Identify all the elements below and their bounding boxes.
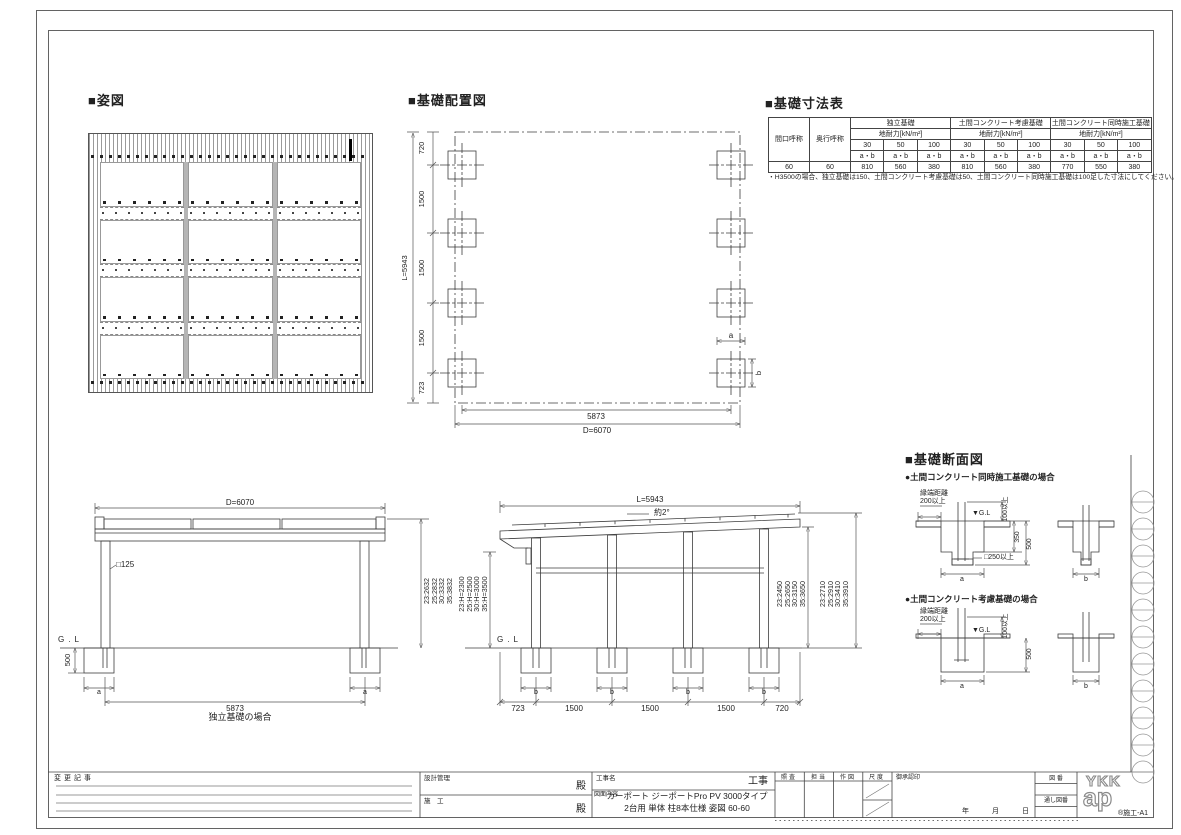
dim-label: 1500 (717, 704, 735, 713)
dim-label: 100以上 (1002, 497, 1010, 522)
date-day-label: 日 (1022, 807, 1029, 816)
plan-view (88, 133, 373, 393)
ykk-logo-bottom: ap (1083, 784, 1112, 813)
table-cell: 380 (1017, 162, 1050, 173)
table-cell: 560 (884, 162, 917, 173)
dim-label: a (97, 689, 101, 697)
plan-column (100, 162, 184, 379)
side-elevation-lines (465, 501, 862, 648)
design-admin-label: 設計管理 (424, 774, 450, 783)
table-cell: 100 (1118, 140, 1151, 151)
dim-label: 35:3910 (842, 581, 850, 607)
construction-label: 施 工 (424, 797, 444, 806)
col-header: 尺度 (869, 774, 885, 783)
project-name-label: 工事名 (596, 774, 616, 783)
plan-column (277, 162, 361, 379)
edge-distance-label: 縁端距離 (920, 490, 948, 498)
roof-panel (277, 277, 361, 322)
roof-panel (277, 335, 361, 380)
table-cell: 100 (917, 140, 950, 151)
table-note: ・H3500の場合、独立基礎は150、土間コンクリート考慮基礎は50、土間コンク… (768, 173, 1178, 182)
table-cell: a・b (884, 151, 917, 162)
dim-label: 35:H=3500 (481, 576, 489, 611)
table-cell: a・b (984, 151, 1017, 162)
table-cell: a・b (1118, 151, 1151, 162)
table-cell: a・b (951, 151, 984, 162)
table-cell: 30 (851, 140, 884, 151)
dono-label: 殿 (576, 805, 586, 814)
front-elevation-lines (60, 503, 429, 706)
table-cell: 60 (769, 162, 810, 173)
table-cell: a・b (851, 151, 884, 162)
table-cell: 560 (984, 162, 1017, 173)
table-cell: 50 (984, 140, 1017, 151)
change-notes-label: 変更記事 (54, 774, 94, 783)
purlin-band (188, 207, 272, 220)
table-cell: 奥行呼称 (810, 118, 851, 162)
table-cell: 間口呼称 (769, 118, 810, 162)
dim-label: 723 (511, 704, 524, 713)
table-cell: a・b (917, 151, 950, 162)
dim-label: 35:3650 (799, 581, 807, 607)
table-cell: 550 (1084, 162, 1117, 173)
table-cell: a・b (1084, 151, 1117, 162)
date-month-label: 月 (992, 807, 999, 816)
plan-dot-strip (91, 381, 370, 384)
table-cell: 100 (1017, 140, 1050, 151)
foundation-layout-lines (407, 132, 756, 428)
table-cell: 土間コンクリート考慮基礎 (951, 118, 1051, 129)
table-cell: 50 (1084, 140, 1117, 151)
col-header: 照査 (781, 774, 797, 783)
table-cell: a・b (1051, 151, 1084, 162)
dim-label: 1500 (418, 260, 426, 277)
ground-line-label: ▼G.L (972, 627, 990, 635)
table-cell: 独立基礎 (851, 118, 951, 129)
purlin-band (100, 264, 184, 277)
front-caption: 独立基礎の場合 (208, 713, 271, 722)
plan-panel-grid (100, 162, 361, 379)
binder-rings (1132, 491, 1154, 783)
dim-label: b (686, 689, 690, 697)
plan-dot-strip (91, 155, 370, 158)
dim-label: 1500 (565, 704, 583, 713)
roof-panel (188, 162, 272, 207)
section-case1-label: ●土間コンクリート同時施工基礎の場合 (905, 473, 1055, 482)
dim-label: 1500 (418, 191, 426, 208)
roof-panel (277, 162, 361, 207)
side-elevation-columns (497, 529, 803, 706)
table-cell: 810 (851, 162, 884, 173)
sheet-code: ®施工-A1 (1118, 809, 1148, 818)
roof-panel (100, 162, 184, 207)
dim-label: b (755, 371, 763, 375)
height-labels: 23:263225:283230:333235:3832 (423, 578, 453, 604)
dim-label: 1500 (641, 704, 659, 713)
roof-panel (100, 277, 184, 322)
dim-label: 500 (64, 654, 72, 667)
ground-line-label: G.L (58, 635, 83, 644)
purlin-band (277, 207, 361, 220)
height-labels: 23:245025:265030:315035:3650 (776, 581, 806, 607)
table-cell: 30 (951, 140, 984, 151)
table-cell: 地耐力[kN/m²] (1051, 129, 1151, 140)
purlin-band (277, 322, 361, 335)
col-header: 作図 (840, 774, 856, 783)
dim-label: 500 (1026, 538, 1034, 549)
drawing-content-line2: 2台用 単体 柱8本仕様 姿図 60-60 (624, 804, 750, 813)
table-cell: a・b (1017, 151, 1050, 162)
roof-panel (100, 220, 184, 265)
post-size-label: □125 (116, 560, 134, 569)
drawing-number-label: 図 番 (1049, 775, 1063, 784)
edge-distance-label: 縁端距離 (920, 608, 948, 616)
dim-label: a (363, 689, 367, 697)
layout-title: ■基礎配置図 (408, 96, 487, 105)
dim-label: b (1084, 683, 1088, 691)
roof-panel (277, 220, 361, 265)
table-cell: 380 (1118, 162, 1151, 173)
section-case2-label: ●土間コンクリート考慮基礎の場合 (905, 595, 1038, 604)
purlin-band (277, 264, 361, 277)
table-cell: 30 (1051, 140, 1084, 151)
foundation-dimension-table: 間口呼称奥行呼称独立基礎土間コンクリート考慮基礎土間コンクリート同時施工基礎地耐… (768, 117, 1152, 173)
dim-label: a (729, 331, 733, 340)
dim-label: L=5943 (637, 495, 664, 504)
dim-label: 1500 (418, 330, 426, 347)
section-title: ■基礎断面図 (905, 455, 984, 464)
table-cell: 770 (1051, 162, 1084, 173)
pocket-size-label: □250以上 (984, 554, 1014, 562)
ground-line-label: G.L (497, 635, 522, 644)
table-cell: 810 (951, 162, 984, 173)
serial-number-label: 通し図番 (1044, 797, 1068, 806)
roof-panel (188, 277, 272, 322)
dim-label: 100以上 (1002, 614, 1010, 639)
plan-title: ■姿図 (88, 96, 125, 105)
dim-label: D=6070 (226, 498, 254, 507)
approval-label: 御承認印 (896, 774, 920, 783)
table-cell: 380 (917, 162, 950, 173)
purlin-band (188, 322, 272, 335)
height-labels: 23:271025:291030:341035:3910 (819, 581, 849, 607)
dono-label: 殿 (576, 782, 586, 791)
edge-distance-value: 200以上 (920, 616, 946, 624)
purlin-band (100, 322, 184, 335)
dim-label: 723 (418, 382, 426, 395)
dim-label: D=6070 (583, 426, 611, 435)
eave-height-labels: 23:H=230025:H=250030:H=300035:H=3500 (458, 576, 488, 611)
purlin-band (100, 207, 184, 220)
table-cell: 地耐力[kN/m²] (851, 129, 951, 140)
project-name-value: 工事 (748, 777, 768, 786)
edge-distance-value: 200以上 (920, 498, 946, 506)
dim-label: L=5943 (401, 255, 409, 280)
roof-panel (100, 335, 184, 380)
dim-label: 720 (775, 704, 788, 713)
table-title: ■基礎寸法表 (765, 99, 844, 108)
dim-label: 350 (1014, 531, 1022, 542)
footing-squares (440, 143, 753, 395)
table-cell: 50 (884, 140, 917, 151)
purlin-band (188, 264, 272, 277)
col-header: 担当 (811, 774, 827, 783)
ground-line-label: ▼G.L (972, 510, 990, 518)
roof-panel (188, 220, 272, 265)
dim-label: b (762, 689, 766, 697)
dim-label: 5873 (587, 412, 605, 421)
plan-mark (349, 139, 352, 161)
roof-panel (188, 335, 272, 380)
table-cell: 土間コンクリート同時施工基礎 (1051, 118, 1151, 129)
dim-label: a (960, 576, 964, 584)
dim-label: b (610, 689, 614, 697)
slope-label: 約2° (654, 508, 670, 517)
table-cell: 地耐力[kN/m²] (951, 129, 1051, 140)
dim-label: b (1084, 576, 1088, 584)
dim-label: 500 (1026, 648, 1034, 659)
date-year-label: 年 (962, 807, 969, 816)
dim-label: 35:3832 (446, 578, 454, 604)
dim-label: b (534, 689, 538, 697)
dim-label: a (960, 683, 964, 691)
table-cell: 60 (810, 162, 851, 173)
plan-column (188, 162, 272, 379)
drawing-sheet: ■姿図 ■基礎配置図 L=5943 720 1500 1500 1500 723… (0, 0, 1181, 835)
drawing-content-line1: カーポート ジーポートPro PV 3000タイプ (606, 792, 767, 801)
dim-label: 720 (418, 142, 426, 155)
